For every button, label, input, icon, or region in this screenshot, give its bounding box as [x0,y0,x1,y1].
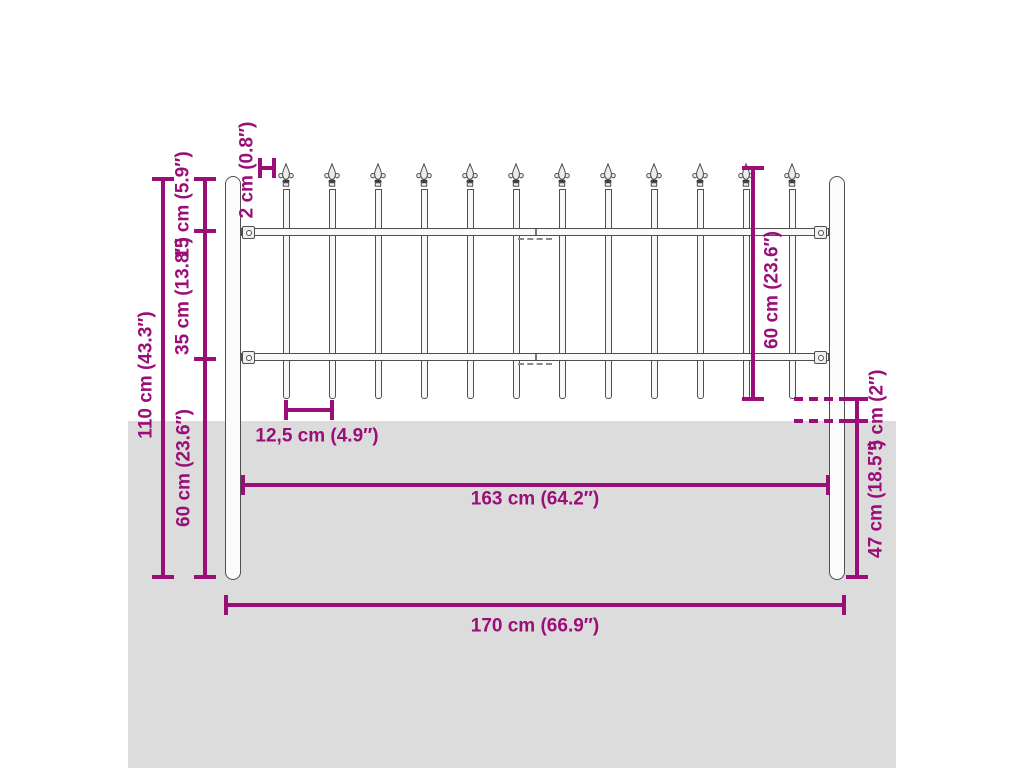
dim-tick [194,575,216,579]
dim-line-height-sections [203,179,207,577]
dim-label-picket-spacing: 12,5 cm (4.9″) [255,427,378,446]
spear-finial-icon [554,163,570,190]
dim-tick [241,475,245,495]
dim-line-inner-width [243,483,828,487]
spear-finial-icon [278,163,294,190]
picket [508,163,524,195]
left-post [225,176,241,580]
dim-label-panel-height: 60 cm (23.6″) [763,231,782,349]
dim-label-rail-to-rail: 35 cm (13.8″) [174,237,193,355]
picket [370,163,386,195]
dim-label-spear-width: 2 cm (0.8″) [238,122,257,219]
dim-tick [194,229,216,233]
dim-tick [152,575,174,579]
spear-finial-icon [462,163,478,190]
dim-tick [742,397,764,401]
picket [692,163,708,195]
rail-joint-mark [518,238,552,240]
picket-bar [651,189,658,399]
dim-label-height-total: 110 cm (43.3″) [137,311,156,438]
picket-bar [743,189,750,399]
picket [554,163,570,195]
picket-bar [513,189,520,399]
dim-tick [194,357,216,361]
dim-tick [842,595,846,615]
picket [462,163,478,195]
rail-joint-mark [518,363,552,365]
spear-finial-icon [646,163,662,190]
picket [646,163,662,195]
picket-bar [467,189,474,399]
picket-bar [375,189,382,399]
picket [784,163,800,195]
picket [600,163,616,195]
dim-label-inner-width: 163 cm (64.2″) [471,490,599,509]
rail-clamp [242,226,255,239]
top-rail [241,228,829,236]
spear-finial-icon [508,163,524,190]
dim-line-spear-width [258,166,276,170]
dim-label-total-width: 170 cm (66.9″) [471,617,599,636]
dim-line-total-width [226,603,844,607]
picket [278,163,294,195]
picket-bar [421,189,428,399]
rail-clamp [814,351,827,364]
bolt-head-icon [246,355,252,361]
picket-bar [559,189,566,399]
dim-tick [224,595,228,615]
dim-label-post-depth: 47 cm (18.5″) [867,440,886,558]
spear-finial-icon [370,163,386,190]
rail-seam [535,229,537,235]
picket-bar [789,189,796,399]
dim-tick [194,177,216,181]
dim-tick [826,475,830,495]
spear-finial-icon [324,163,340,190]
dim-label-post-below-rail: 60 cm (23.6″) [175,409,194,527]
dim-line-post-depth [855,399,859,577]
spear-finial-icon [600,163,616,190]
dim-tick [846,397,868,401]
picket [324,163,340,195]
picket-bar [605,189,612,399]
spear-finial-icon [416,163,432,190]
spear-finial-icon [692,163,708,190]
rail-seam [535,354,537,360]
bolt-head-icon [246,230,252,236]
picket-bar [329,189,336,399]
picket-bar [283,189,290,399]
bottom-rail [241,353,829,361]
dim-line-height-total [161,179,165,577]
ground-area [128,421,896,768]
picket-bar [697,189,704,399]
dim-tick [846,419,868,423]
dim-tick [152,177,174,181]
dim-tick [846,575,868,579]
rail-clamp [814,226,827,239]
fence-dimension-diagram: 110 cm (43.3″) 15 cm (5.9″) 35 cm (13.8″… [0,0,1024,768]
dim-line-picket-spacing [284,408,334,412]
dim-tick [742,166,764,170]
right-post [829,176,845,580]
spear-finial-icon [784,163,800,190]
dim-line-panel-height [751,168,755,399]
rail-clamp [242,351,255,364]
bolt-head-icon [818,230,824,236]
picket [416,163,432,195]
dim-label-ground-clearance: 5 cm (2″) [868,370,887,451]
bolt-head-icon [818,355,824,361]
